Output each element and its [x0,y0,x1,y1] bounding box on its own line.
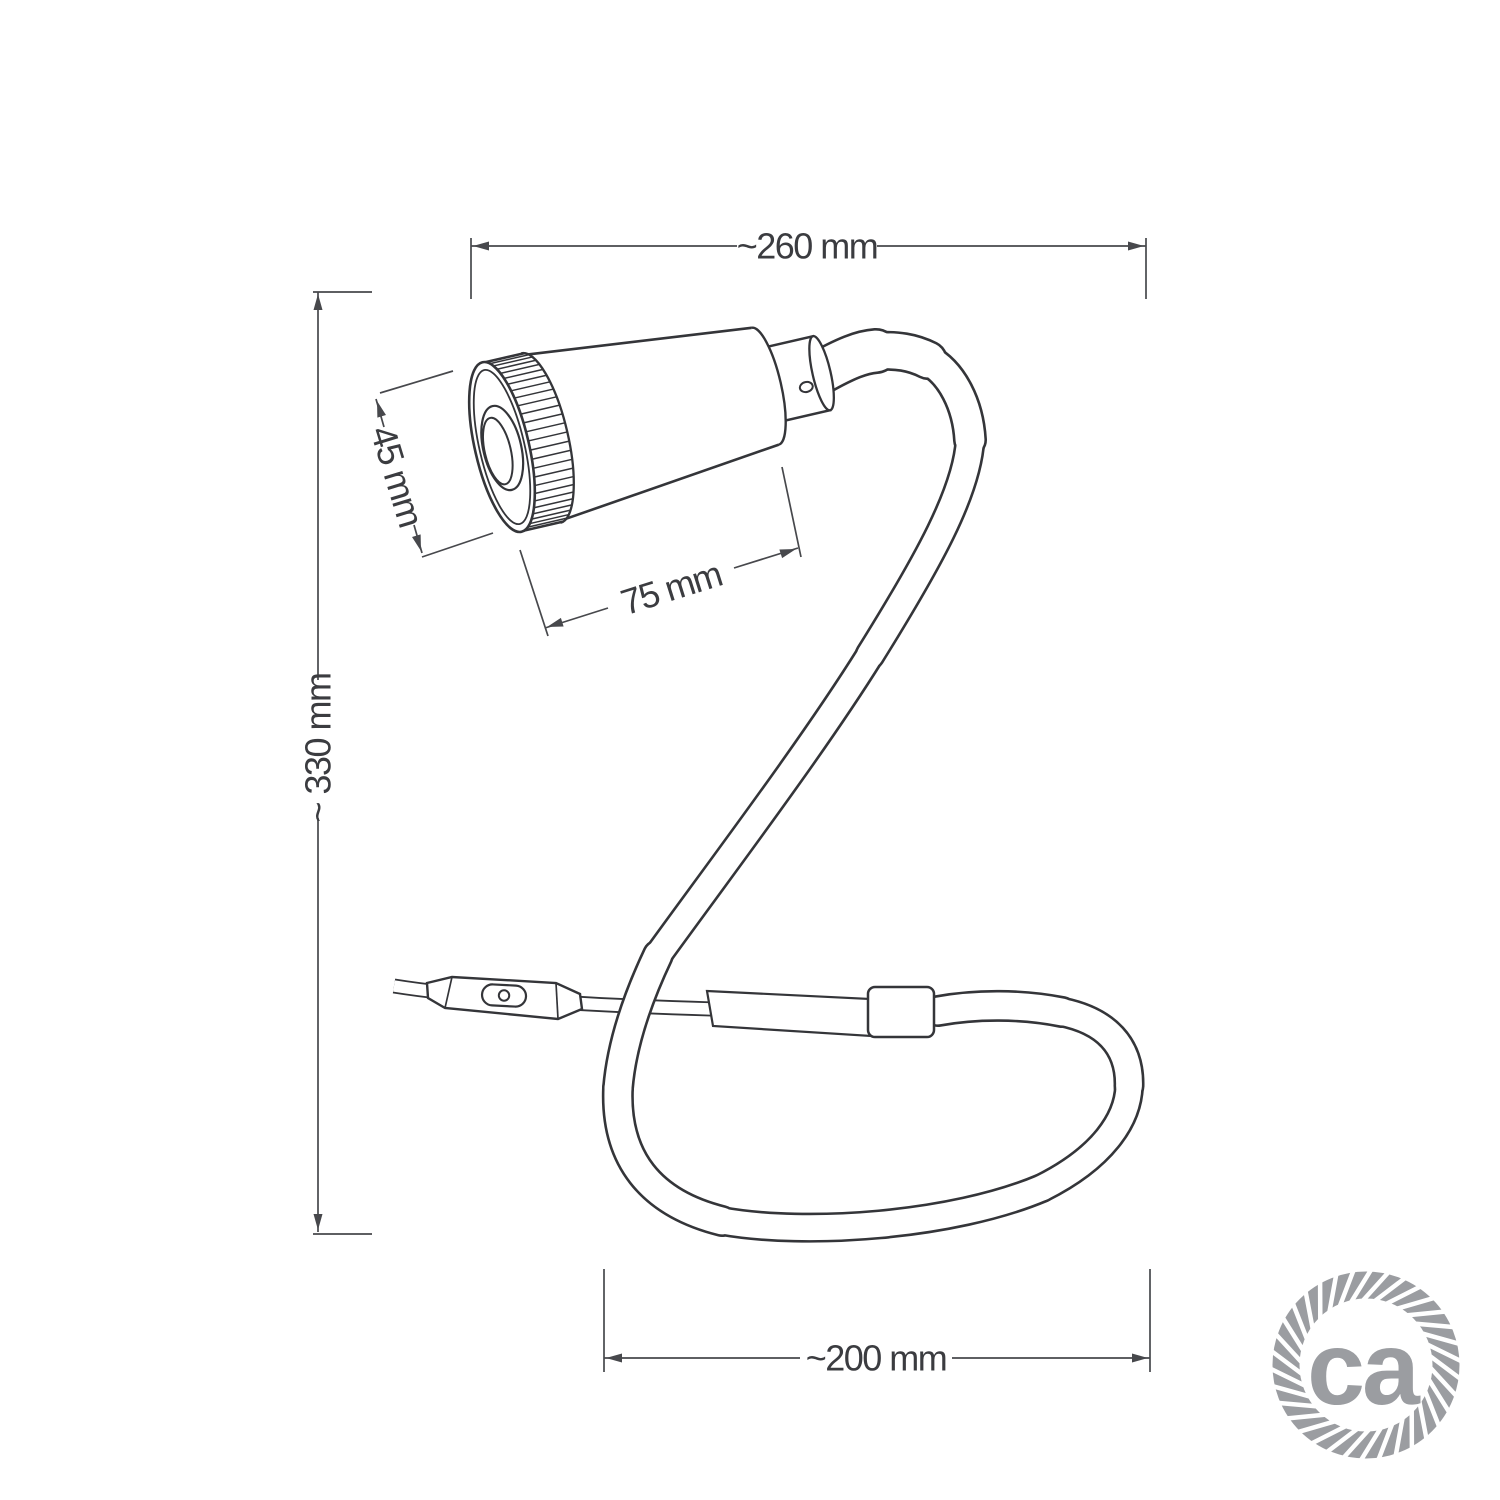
switch-rocker-dot [499,990,510,1001]
product-dimension-diagram: ~260 mm ~ 330 mm 45 mm 75 mm ~200 mm ca [0,0,1500,1500]
cord-sleeve [707,991,871,1036]
logo-text: ca [1307,1311,1421,1427]
brand-logo: ca [1270,1269,1462,1461]
label-head-diameter: 45 mm [362,421,431,531]
label-base-loop-width: ~200 mm [806,1338,947,1379]
cable-collar [868,987,934,1037]
inline-switch [427,977,582,1019]
diagram-canvas: ~260 mm ~ 330 mm 45 mm 75 mm ~200 mm ca [0,0,1500,1500]
label-head-length: 75 mm [616,553,726,623]
label-overall-width: ~260 mm [737,226,878,267]
label-overall-height: ~ 330 mm [298,673,339,822]
gooseneck-cable [618,351,1129,1228]
